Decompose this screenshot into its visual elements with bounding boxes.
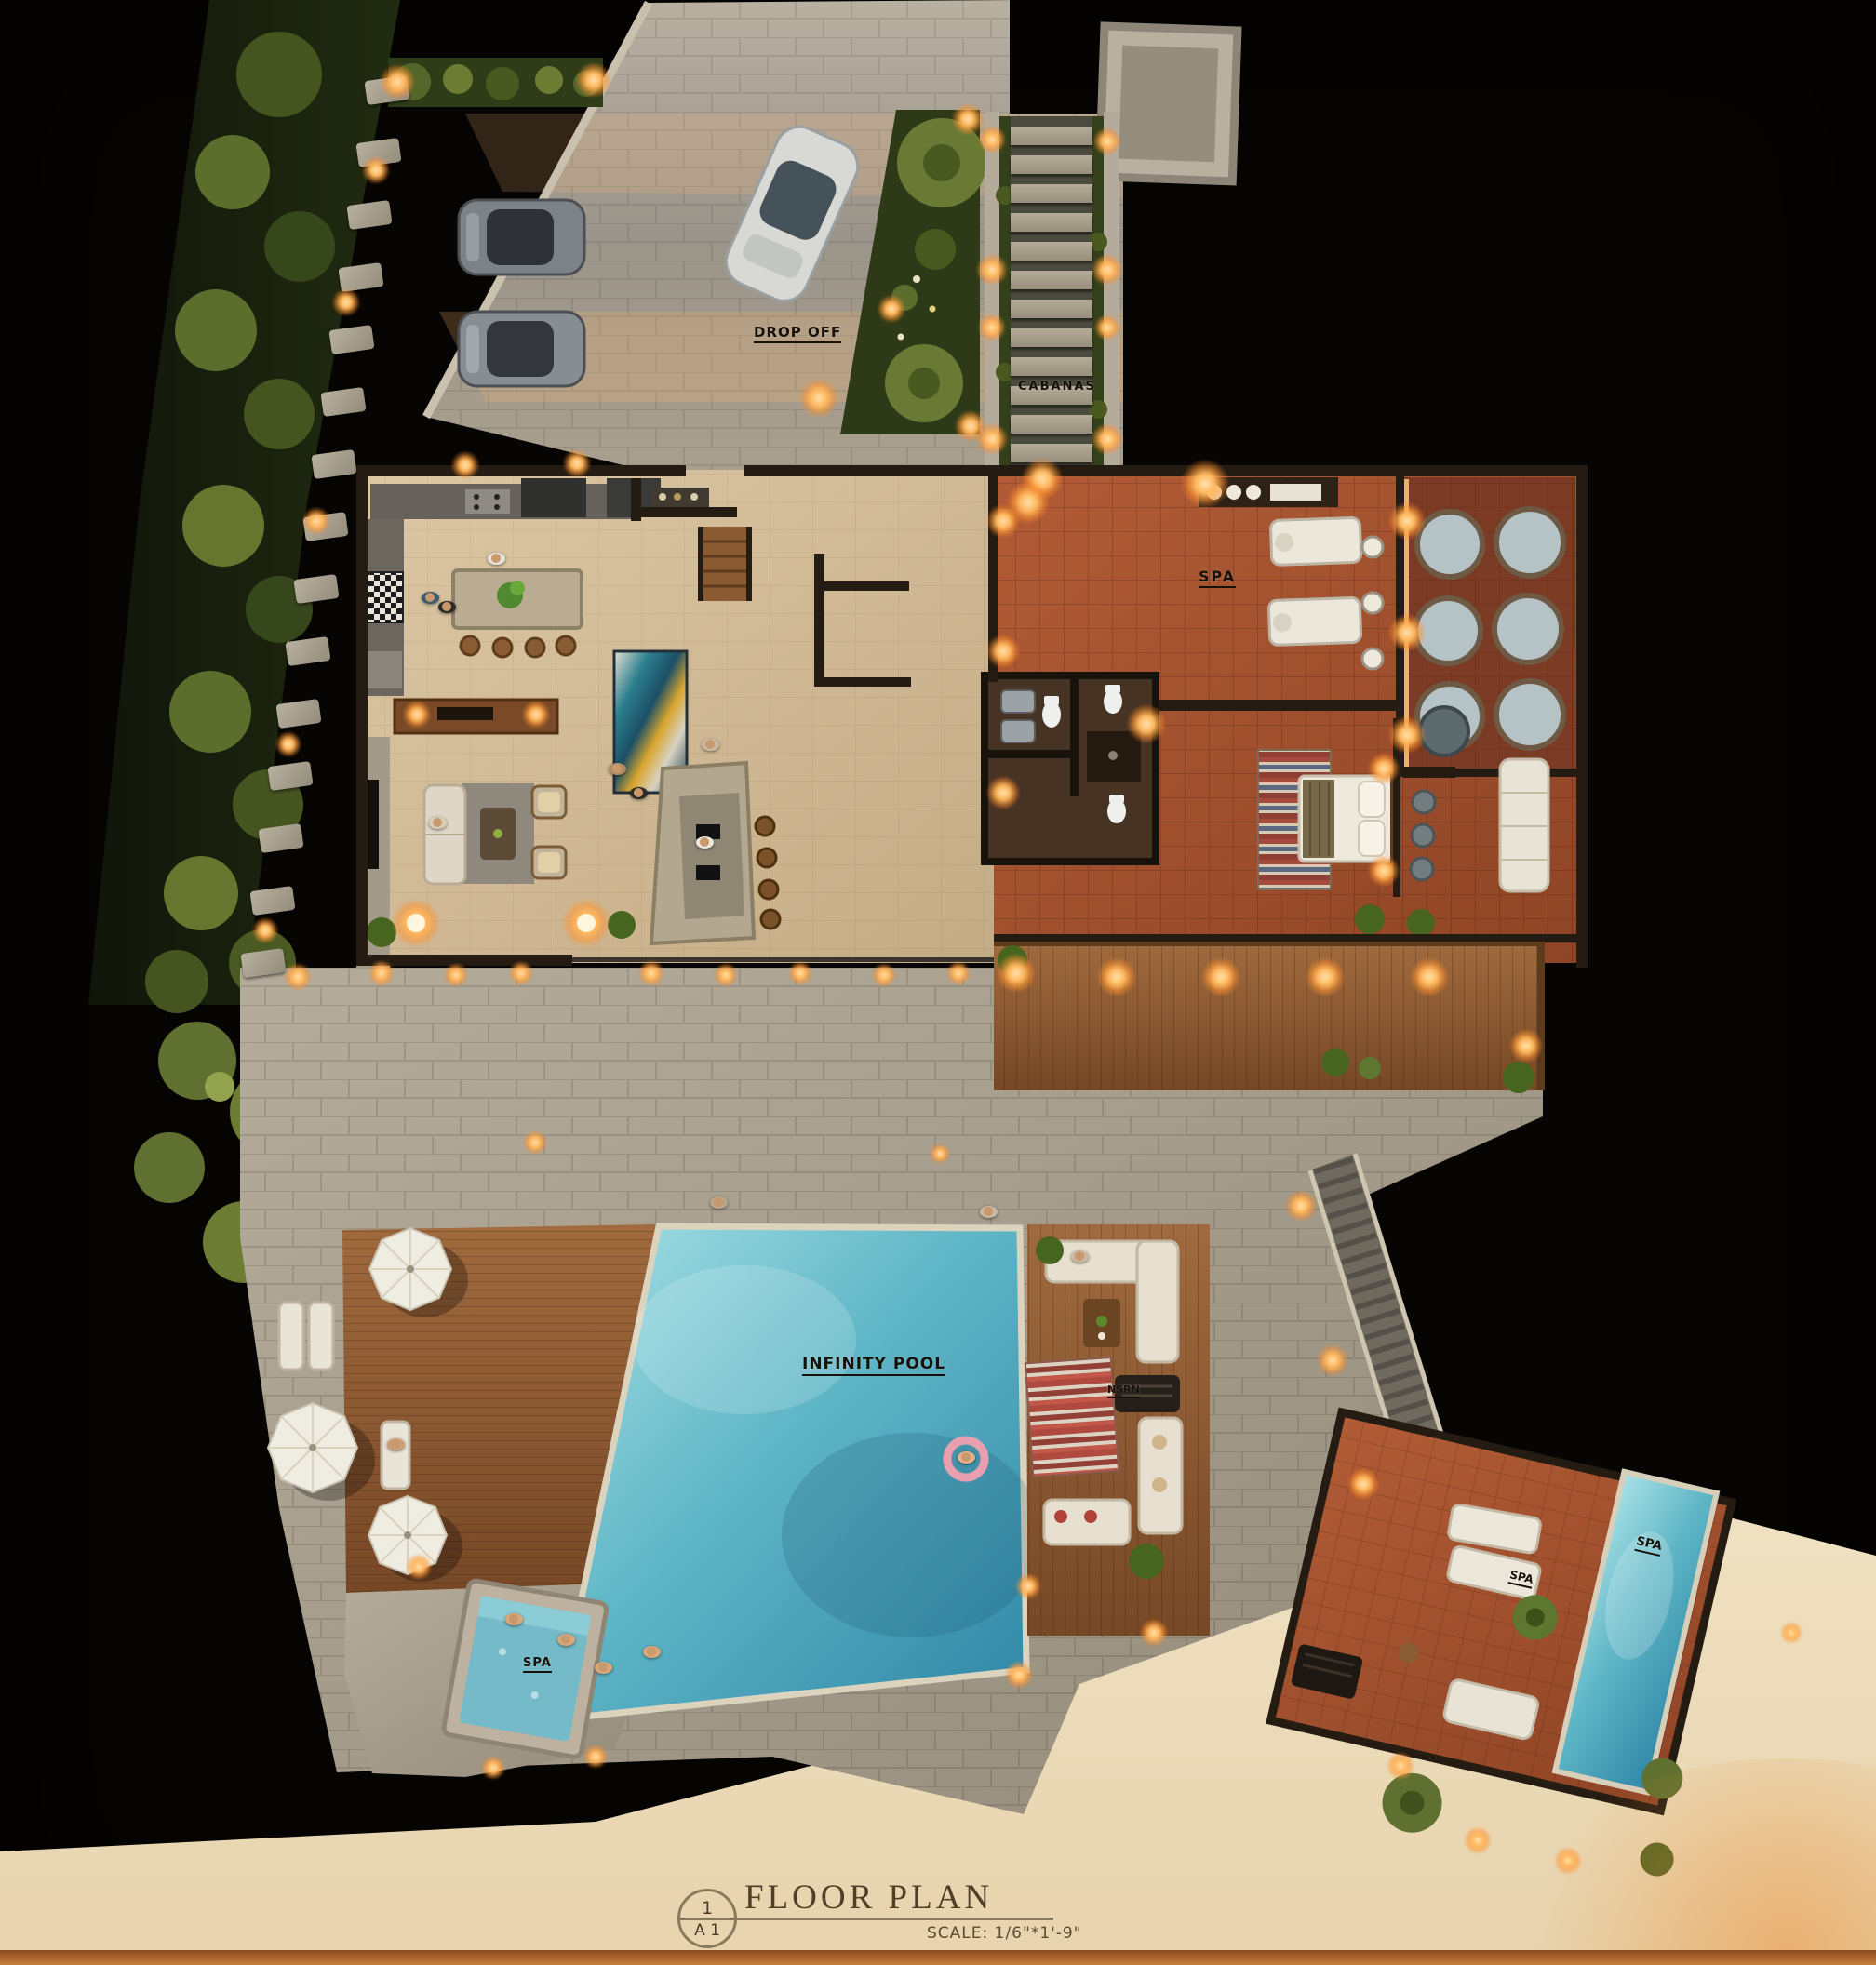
floor-plant	[608, 911, 636, 939]
deck-plant	[1321, 1049, 1349, 1076]
drawing-title: FLOOR PLAN	[744, 1878, 993, 1918]
plunge-spa-label: SPA	[523, 1656, 552, 1673]
spa-deck	[994, 942, 1545, 1093]
stool	[1412, 824, 1434, 847]
floor-plant	[1355, 904, 1385, 934]
floor-plant	[1407, 909, 1435, 937]
detail-number: 1	[680, 1898, 734, 1918]
bar-stool	[757, 849, 776, 867]
drop-off-label: DROP OFF	[754, 324, 841, 343]
sink	[1001, 720, 1035, 742]
spa-side-table	[1362, 648, 1383, 669]
fire-lounge-tag: NSRN	[1107, 1384, 1140, 1398]
lounge-plant	[1129, 1544, 1164, 1579]
lounge-sofa	[1044, 1500, 1130, 1544]
bathrooms	[985, 675, 1156, 862]
bar-stool	[556, 636, 575, 655]
sink	[1001, 690, 1035, 713]
sheet-number: A 1	[680, 1921, 734, 1940]
kitchen-appliance	[521, 478, 586, 517]
bar-stool	[493, 638, 512, 657]
cabanas-label: CABANAS	[1018, 380, 1096, 394]
sectional-sofa	[1137, 1241, 1178, 1362]
sun-lounger	[382, 1422, 409, 1489]
spa-wing	[985, 470, 1582, 963]
stool	[1411, 858, 1433, 880]
poolside-lounge	[1025, 1224, 1210, 1636]
bar-stool	[526, 638, 544, 657]
detail-callout-bubble: 1 A 1	[677, 1889, 737, 1948]
sun-lounger	[279, 1303, 303, 1370]
cooktop	[465, 489, 510, 514]
site-plan-graphics	[0, 0, 1876, 1965]
bar-stool	[759, 880, 778, 899]
stool	[1413, 791, 1435, 813]
infinity-pool-label: INFINITY POOL	[802, 1355, 945, 1376]
spa-room-label: SPA	[1199, 568, 1236, 588]
drawing-scale: SCALE: 1/6"*1'-9"	[927, 1924, 1082, 1943]
deck-plant	[1359, 1057, 1381, 1079]
spa-side-table	[1362, 593, 1383, 613]
great-room	[356, 470, 994, 969]
round-table	[1420, 707, 1468, 755]
spa-side-table	[1362, 537, 1383, 557]
plaza-garden-bed	[388, 58, 603, 107]
parked-car-1	[459, 200, 584, 274]
bar-stool	[756, 817, 774, 835]
sun-lounger	[309, 1303, 333, 1370]
bar-stool	[461, 636, 479, 655]
deck-plant	[998, 945, 1027, 975]
lounge-plant	[1036, 1236, 1064, 1264]
entry-steps	[698, 527, 752, 601]
cabanas-stair	[985, 112, 1119, 475]
striped-blanket	[1025, 1357, 1119, 1477]
fireplace	[366, 780, 379, 869]
title-block: 1 A 1 FLOOR PLAN SCALE: 1/6"*1'-9"	[651, 1870, 1303, 1963]
bar-stool	[761, 910, 780, 929]
entry-planter	[1099, 26, 1238, 181]
graphic-runner-rug	[366, 572, 403, 622]
deck-plant	[1503, 1062, 1534, 1093]
floor-plan-render: DROP OFF CABANAS SPA INFINITY POOL SPA N…	[0, 0, 1876, 1965]
parked-car-2	[459, 312, 584, 386]
floor-plant	[367, 917, 396, 947]
